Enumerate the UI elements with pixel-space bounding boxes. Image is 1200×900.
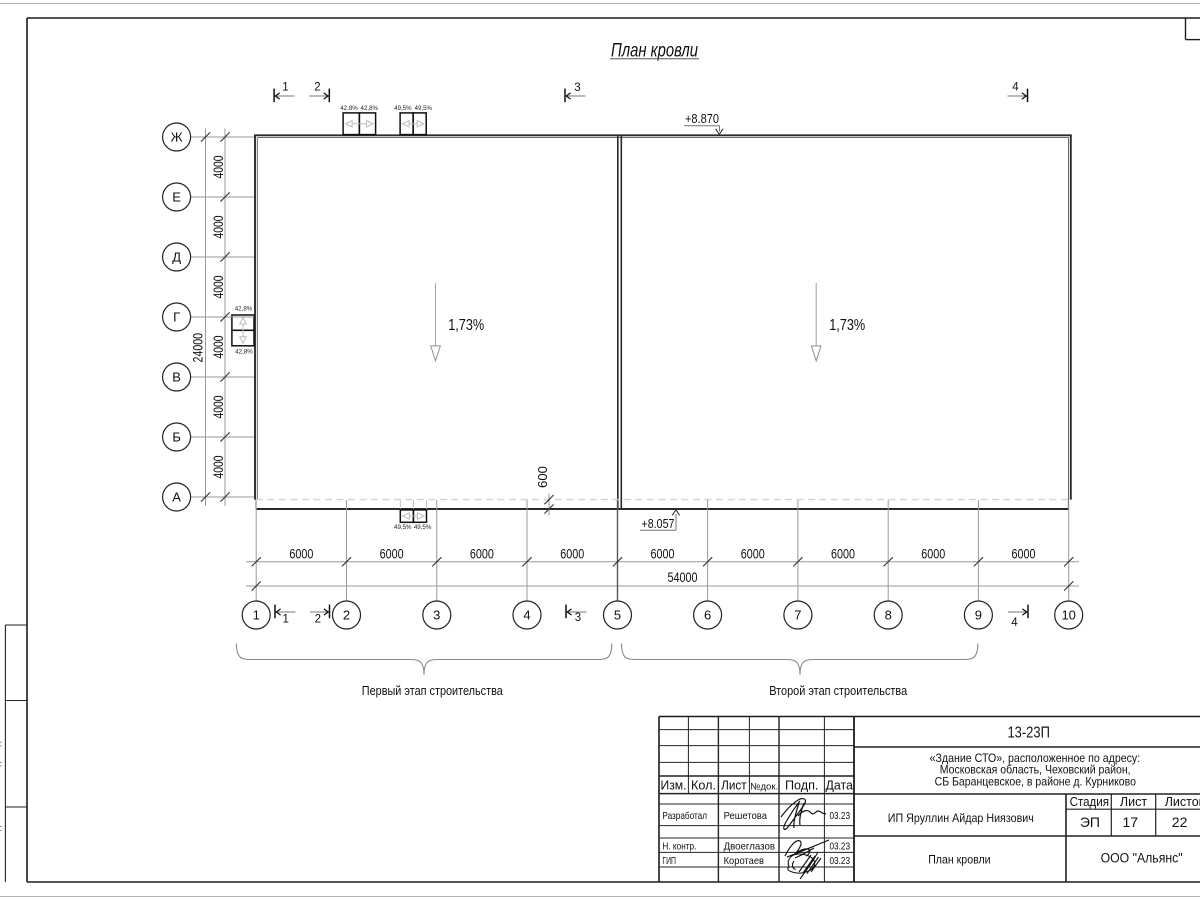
svg-text:4: 4 <box>1012 81 1019 93</box>
svg-text:Второй этап строительства: Второй этап строительства <box>769 684 907 698</box>
svg-text:49,5%: 49,5% <box>394 524 412 531</box>
svg-text:42,8%: 42,8% <box>235 305 253 312</box>
svg-text:42,8%: 42,8% <box>361 105 379 112</box>
svg-text:03.23: 03.23 <box>830 810 851 822</box>
svg-text:А: А <box>172 490 181 505</box>
svg-text:8: 8 <box>885 608 892 623</box>
svg-text:План кровли: План кровли <box>928 852 990 866</box>
svg-text:4000: 4000 <box>211 455 226 478</box>
svg-text:Лист: Лист <box>721 778 747 793</box>
svg-text:ЭП: ЭП <box>1080 814 1100 830</box>
svg-text:Лист: Лист <box>1120 795 1147 809</box>
svg-text:4: 4 <box>1011 617 1018 629</box>
svg-text:Ж: Ж <box>171 130 183 145</box>
svg-text:2: 2 <box>343 608 350 623</box>
svg-text:6000: 6000 <box>470 547 494 562</box>
svg-text:Решетова: Решетова <box>724 810 768 822</box>
svg-text:Разработал: Разработал <box>662 810 707 822</box>
svg-text:1: 1 <box>253 608 260 623</box>
svg-text:ИП Яруллин Айдар Ниязович: ИП Яруллин Айдар Ниязович <box>888 811 1034 825</box>
svg-text:СБ Баранцевское, в районе д. К: СБ Баранцевское, в районе д. Курниково <box>935 774 1137 788</box>
svg-text:7: 7 <box>794 608 801 623</box>
svg-text:Подп. и дата: Подп. и дата <box>0 729 2 777</box>
svg-text:17: 17 <box>1123 814 1139 830</box>
svg-text:3: 3 <box>574 82 580 94</box>
svg-text:6000: 6000 <box>380 547 404 562</box>
svg-text:1,73%: 1,73% <box>829 317 865 334</box>
svg-text:План кровли: План кровли <box>611 40 698 61</box>
svg-text:В: В <box>172 370 181 385</box>
svg-text:Кол.: Кол. <box>691 778 716 793</box>
svg-text:Б: Б <box>172 430 181 445</box>
svg-text:Стадия: Стадия <box>1070 795 1109 809</box>
svg-text:13-23П: 13-23П <box>1007 725 1050 742</box>
svg-text:49,5%: 49,5% <box>415 105 433 112</box>
svg-text:Изм.: Изм. <box>661 778 687 793</box>
svg-text:Листов: Листов <box>1165 795 1200 809</box>
svg-text:4000: 4000 <box>211 335 226 358</box>
svg-text:4: 4 <box>523 608 530 623</box>
svg-text:6000: 6000 <box>560 547 584 562</box>
svg-text:4000: 4000 <box>211 275 226 298</box>
svg-text:Подп.: Подп. <box>785 778 819 793</box>
svg-text:5: 5 <box>614 608 621 623</box>
svg-text:Д: Д <box>172 250 181 265</box>
svg-text:4000: 4000 <box>211 155 226 178</box>
svg-text:6000: 6000 <box>741 547 765 562</box>
svg-text:№док.: №док. <box>750 781 778 792</box>
svg-text:Инв. № подл.: Инв. № подл. <box>0 819 2 869</box>
svg-text:9: 9 <box>975 608 982 623</box>
svg-text:03.23: 03.23 <box>830 841 851 853</box>
svg-text:1: 1 <box>282 614 288 626</box>
svg-text:6: 6 <box>704 608 711 623</box>
svg-text:6000: 6000 <box>921 547 945 562</box>
svg-text:Е: Е <box>172 190 181 205</box>
svg-text:+8.870: +8.870 <box>685 112 719 126</box>
svg-text:03.23: 03.23 <box>830 855 851 867</box>
svg-text:Н. контр.: Н. контр. <box>662 841 696 853</box>
svg-text:6000: 6000 <box>289 547 313 562</box>
svg-text:Первый этап строительства: Первый этап строительства <box>362 684 503 698</box>
svg-text:600: 600 <box>535 466 550 488</box>
svg-text:Коротаев: Коротаев <box>724 855 765 867</box>
svg-text:4000: 4000 <box>211 215 226 238</box>
svg-text:Двоеглазов: Двоеглазов <box>724 841 776 853</box>
svg-text:3: 3 <box>433 608 440 623</box>
svg-text:2: 2 <box>314 81 320 93</box>
svg-text:Г: Г <box>173 310 180 325</box>
svg-text:2: 2 <box>315 614 321 626</box>
svg-text:42,8%: 42,8% <box>235 348 253 355</box>
svg-text:ГИП: ГИП <box>662 855 676 867</box>
svg-text:Взам. инв. №: Взам. инв. № <box>0 637 2 687</box>
svg-text:ООО "Альянс": ООО "Альянс" <box>1101 851 1183 866</box>
svg-text:10: 10 <box>1061 608 1075 623</box>
svg-text:49,5%: 49,5% <box>394 105 412 112</box>
svg-text:1,73%: 1,73% <box>448 317 484 334</box>
svg-text:54000: 54000 <box>668 570 698 585</box>
svg-text:6000: 6000 <box>651 547 675 562</box>
svg-text:6000: 6000 <box>831 547 855 562</box>
svg-text:3: 3 <box>575 612 581 624</box>
svg-text:22: 22 <box>1172 814 1188 830</box>
svg-text:1: 1 <box>282 82 288 94</box>
svg-text:+8.057: +8.057 <box>642 517 675 531</box>
svg-text:Дата: Дата <box>825 778 853 793</box>
svg-text:42,8%: 42,8% <box>340 105 358 112</box>
svg-text:49,5%: 49,5% <box>414 524 432 531</box>
svg-text:4000: 4000 <box>211 395 226 418</box>
svg-text:6000: 6000 <box>1012 547 1036 562</box>
svg-text:24000: 24000 <box>191 333 206 363</box>
